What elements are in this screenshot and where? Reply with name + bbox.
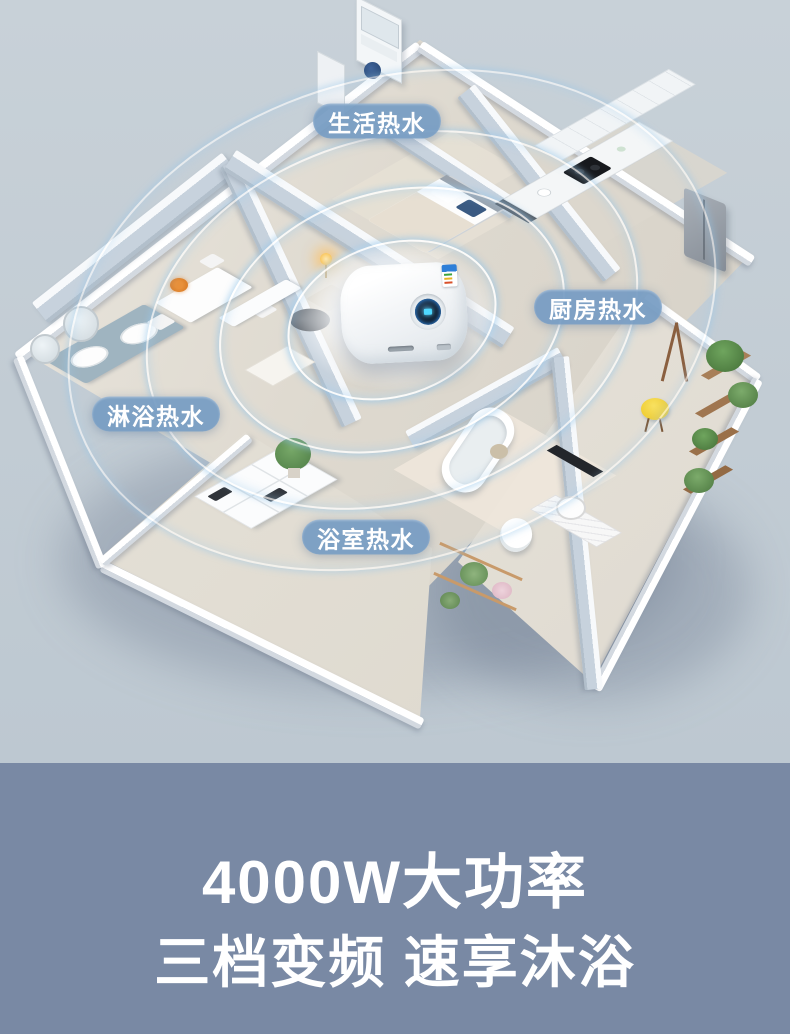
- callout-bathroom-hot-water: 浴室热水: [302, 520, 430, 555]
- headline-band: 4000W大功率 三档变频 速享沐浴: [0, 763, 790, 1034]
- callout-label: 淋浴热水: [107, 397, 205, 431]
- balcony-plant: [684, 468, 714, 493]
- balcony-plant: [728, 382, 758, 408]
- round-mirror: [30, 334, 60, 364]
- callout-label: 生活热水: [328, 104, 426, 138]
- callout-shower-hot-water: 淋浴热水: [92, 397, 220, 432]
- water-heater: [339, 261, 470, 365]
- apartment-render: 生活热水 厨房热水 淋浴热水 浴室热水: [0, 0, 790, 763]
- callout-domestic-hot-water: 生活热水: [313, 104, 441, 139]
- heater-display-screen: [414, 298, 441, 325]
- energy-bar-yellow: [444, 277, 452, 279]
- callout-kitchen-hot-water: 厨房热水: [534, 290, 662, 325]
- energy-bar-red: [444, 281, 452, 283]
- balcony-plant: [706, 340, 744, 372]
- callout-label: 厨房热水: [549, 290, 647, 324]
- rack-plant-green: [460, 562, 488, 586]
- callout-label: 浴室热水: [317, 520, 415, 554]
- heater-display-digits: [424, 309, 432, 315]
- energy-bar-green: [444, 273, 452, 275]
- rack-plant-pink: [492, 582, 512, 599]
- headline-power: 4000W大功率: [202, 849, 588, 916]
- energy-efficiency-label: [442, 264, 458, 287]
- product-banner: 生活热水 厨房热水 淋浴热水 浴室热水 4000W大功率 三档变频 速享沐浴: [0, 0, 790, 1034]
- balcony-plant: [692, 428, 718, 450]
- heater-control-port: [437, 344, 451, 351]
- rack-plant-green: [440, 592, 460, 609]
- headline-subtitle: 三档变频 速享沐浴: [154, 932, 636, 995]
